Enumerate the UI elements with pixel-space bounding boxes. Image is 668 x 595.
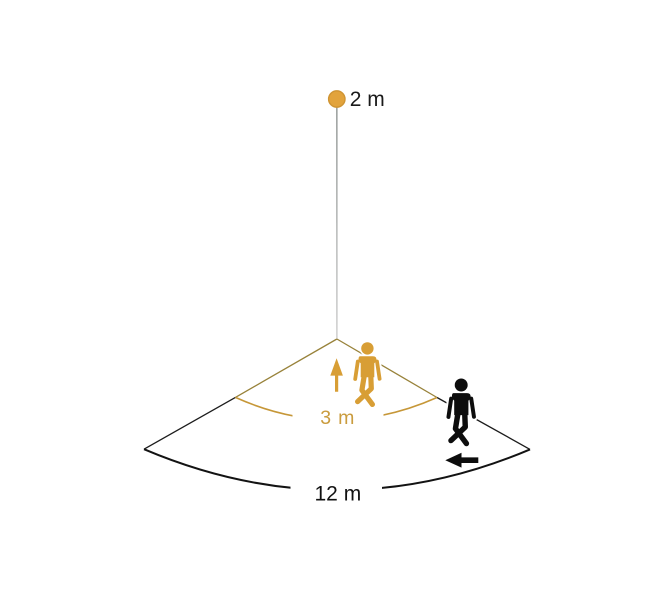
svg-text:12 m: 12 m bbox=[315, 482, 362, 505]
svg-text:3 m: 3 m bbox=[320, 407, 355, 429]
svg-text:2 m: 2 m bbox=[350, 88, 385, 111]
